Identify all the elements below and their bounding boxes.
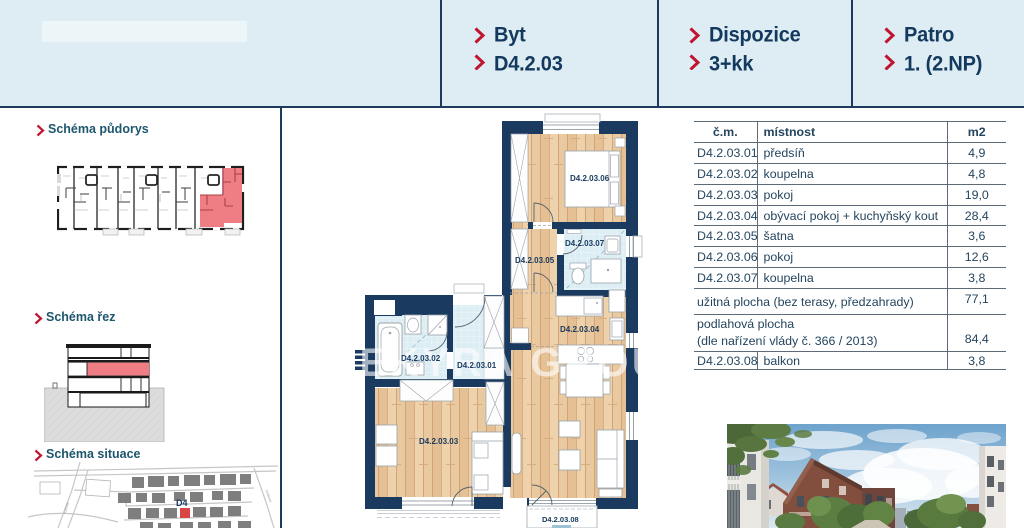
svg-text:D4.2.03.03: D4.2.03.03 [419, 437, 459, 446]
svg-text:D4.2.03.08: D4.2.03.08 [542, 515, 579, 524]
svg-text:D4.2.03.02: D4.2.03.02 [401, 354, 441, 363]
svg-text:D4.2.03.05: D4.2.03.05 [515, 256, 555, 265]
svg-text:D4.2.03.07: D4.2.03.07 [565, 239, 605, 248]
svg-text:D4.2.03.01: D4.2.03.01 [457, 361, 497, 370]
svg-text:Kytlická: Kytlická [63, 502, 70, 514]
svg-text:D4.2.03.06: D4.2.03.06 [570, 174, 610, 183]
svg-text:SEKYRA GROUP: SEKYRA GROUP [350, 341, 670, 385]
svg-text:D4.2.03.04: D4.2.03.04 [560, 325, 600, 334]
svg-text:D4: D4 [176, 498, 188, 508]
